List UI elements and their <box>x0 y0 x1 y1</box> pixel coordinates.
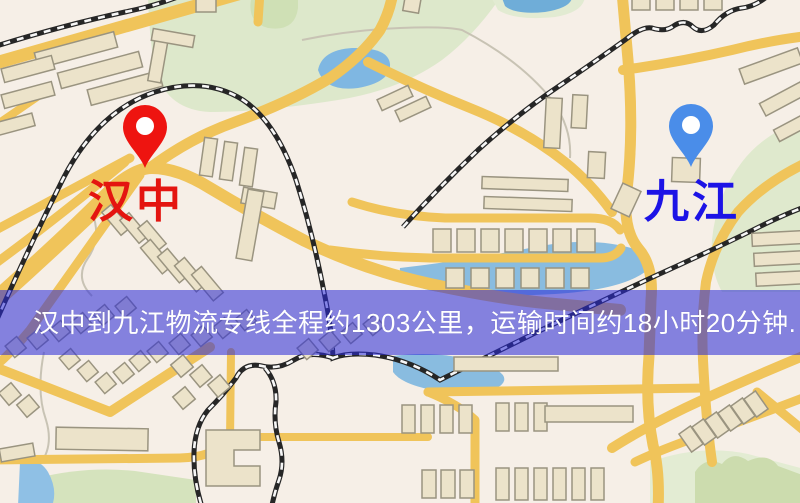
pin-hole <box>136 117 154 135</box>
map-canvas: 汉中 九江 <box>0 0 800 503</box>
origin-city-label: 汉中 <box>88 176 184 227</box>
route-info-text: 汉中到九江物流专线全程约1303公里，运输时间约18小时20分钟. <box>0 310 796 336</box>
pin-hole <box>682 116 700 134</box>
destination-city-label: 九江 <box>644 176 740 227</box>
route-info-banner: 汉中到九江物流专线全程约1303公里，运输时间约18小时20分钟. <box>0 290 800 355</box>
